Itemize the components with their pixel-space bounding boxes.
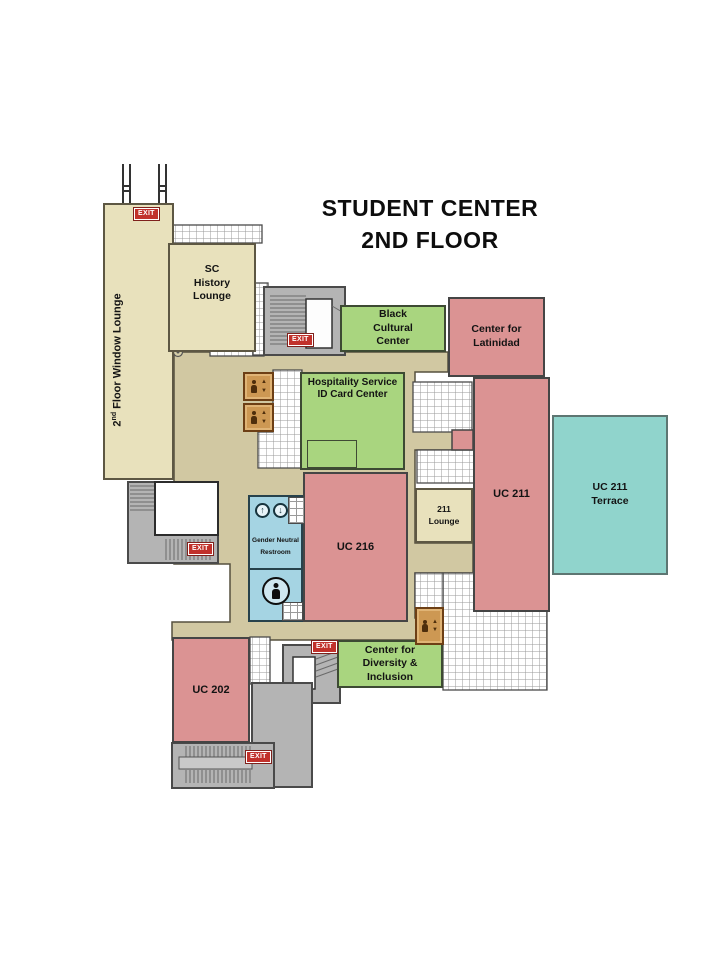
room-center-for-latinidad: Center for Latinidad (448, 297, 545, 377)
title-line-2: 2ND FLOOR (280, 224, 580, 256)
hospitality-counter (307, 440, 357, 468)
elevator-person-icon (421, 620, 428, 633)
exit-sign: EXIT (188, 543, 213, 555)
restroom-divider-wall (248, 568, 303, 570)
elevator-person-icon (250, 380, 257, 393)
exterior-ladder-icon (123, 164, 166, 204)
page-title: STUDENT CENTER 2ND FLOOR (280, 192, 580, 256)
room-uc-211-terrace-label: UC 211 Terrace (583, 481, 638, 508)
exit-sign: EXIT (134, 208, 159, 220)
restroom-person-icon (262, 577, 290, 605)
room-uc-211-label: UC 211 (493, 487, 530, 501)
room-sc-history-lounge: SC History Lounge (168, 243, 256, 352)
room-uc-216: UC 216 (303, 472, 408, 622)
room-211-lounge: 211 Lounge (415, 488, 473, 543)
room-uc-216-label: UC 216 (337, 540, 374, 554)
floor-plan: STUDENT CENTER 2ND FLOOR 2nd Floor Windo… (0, 0, 720, 960)
elevator-icon (243, 372, 274, 401)
elevator-icon (243, 403, 274, 432)
restroom-tile-area (282, 602, 303, 621)
room-black-cultural-center-label: Black Cultural Center (362, 308, 424, 349)
exit-sign: EXIT (246, 751, 271, 763)
elevator-up-icon (255, 503, 270, 518)
elevator-icon (415, 607, 444, 645)
room-hospitality-service-id-label: Hospitality Service ID Card Center (307, 377, 399, 400)
room-center-for-diversity-label: Center for Diversity & Inclusion (345, 644, 435, 685)
room-black-cultural-center: Black Cultural Center (340, 305, 446, 352)
exit-sign: EXIT (288, 334, 313, 346)
exit-sign: EXIT (312, 641, 337, 653)
elevator-arrows-icon (432, 618, 438, 634)
elevator-down-icon (273, 503, 288, 518)
room-uc-211: UC 211 (473, 377, 550, 612)
room-center-for-latinidad-label: Center for Latinidad (462, 323, 532, 350)
person-silhouette (272, 583, 281, 599)
title-line-1: STUDENT CENTER (280, 192, 580, 224)
elevator-arrows-icon (261, 409, 267, 425)
restroom-tile-area (288, 497, 305, 524)
room-uc-202: UC 202 (172, 637, 250, 743)
room-211-lounge-label: 211 Lounge (424, 504, 464, 526)
room-center-for-diversity: Center for Diversity & Inclusion (337, 640, 443, 688)
room-gender-neutral-restroom-label: Gender Neutral Restroom (250, 523, 301, 571)
elevator-arrows-icon (261, 378, 267, 394)
room-sc-history-lounge-label: SC History Lounge (186, 263, 238, 304)
room-window-lounge-label: 2nd Floor Window Lounge (111, 260, 127, 460)
room-uc-211-terrace: UC 211 Terrace (552, 415, 668, 575)
elevator-person-icon (250, 411, 257, 424)
room-uc-202-label: UC 202 (192, 683, 229, 697)
uc-211-wing (452, 430, 473, 450)
